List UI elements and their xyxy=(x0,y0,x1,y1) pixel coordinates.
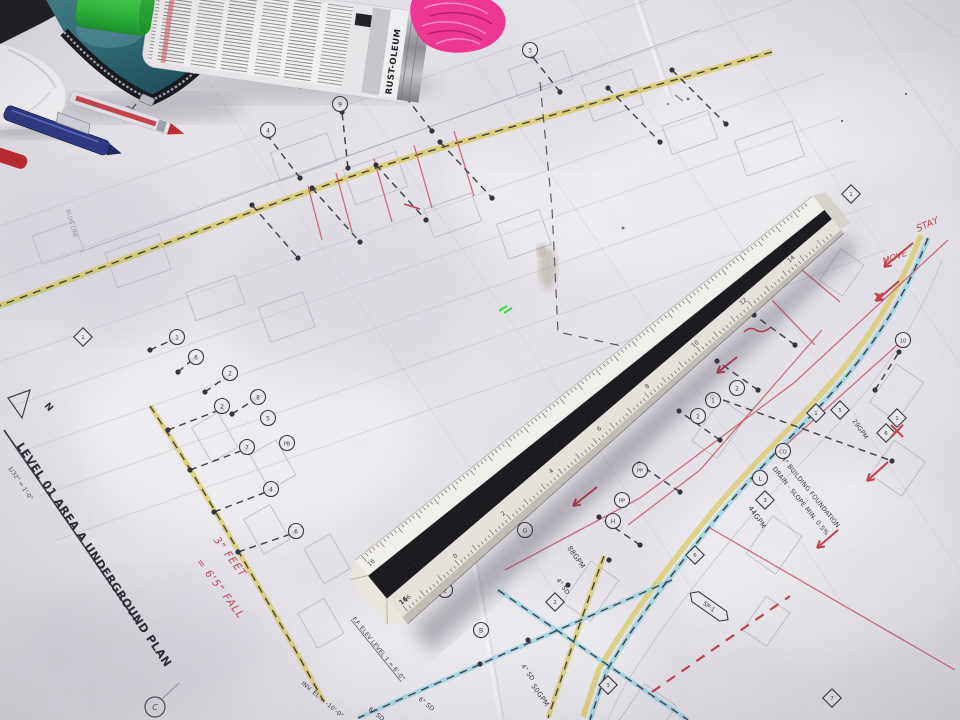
photo-of-blueprint-desk: 16285PB49732746212PPPPHGLCO102B151613623… xyxy=(0,0,960,720)
photo-vignette xyxy=(0,0,960,720)
photo-canvas: 16285PB49732746212PPPPHGLCO102B151613623… xyxy=(0,0,960,720)
